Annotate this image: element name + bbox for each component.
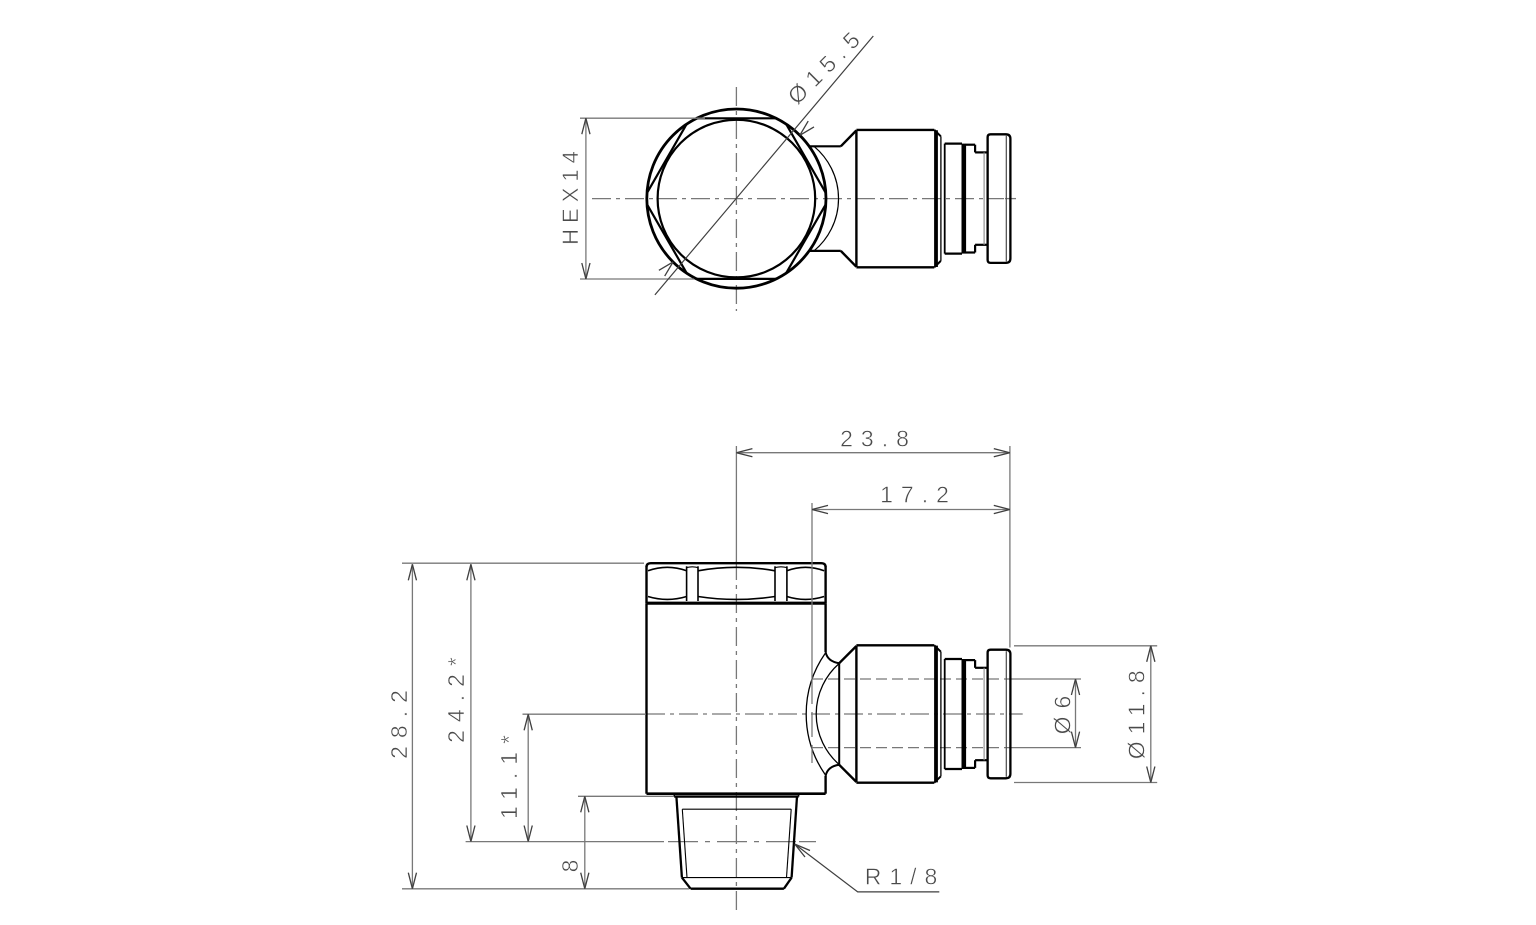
- svg-text:11.1*: 11.1*: [496, 727, 522, 819]
- svg-text:R1/8: R1/8: [865, 864, 946, 890]
- svg-text:17.2: 17.2: [880, 481, 957, 507]
- svg-text:Ø6: Ø6: [1050, 688, 1076, 735]
- svg-text:23.8: 23.8: [840, 426, 917, 452]
- svg-text:8: 8: [557, 852, 583, 873]
- svg-text:24.2*: 24.2*: [443, 649, 469, 743]
- svg-text:HEX14: HEX14: [558, 145, 583, 245]
- svg-text:28.2: 28.2: [386, 682, 412, 759]
- svg-text:Ø11.8: Ø11.8: [1123, 663, 1149, 759]
